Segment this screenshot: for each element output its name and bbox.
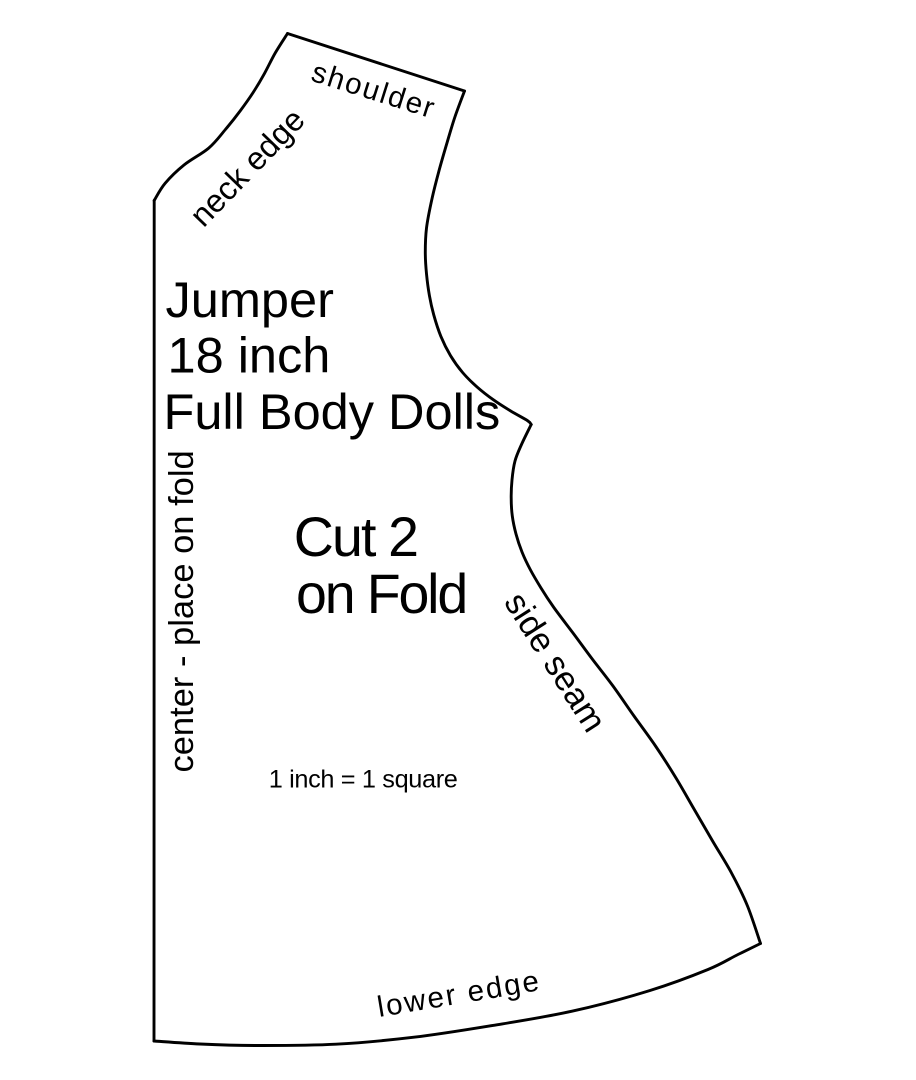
svg-text:center - place on fold: center - place on fold (163, 450, 201, 772)
svg-text:1 inch = 1 square: 1 inch = 1 square (269, 766, 458, 794)
svg-text:Jumper: Jumper (166, 271, 334, 328)
svg-text:on Fold: on Fold (296, 563, 466, 625)
svg-text:Full Body Dolls: Full Body Dolls (164, 383, 501, 440)
svg-text:Cut 2: Cut 2 (294, 506, 417, 568)
svg-text:18 inch: 18 inch (168, 327, 331, 384)
